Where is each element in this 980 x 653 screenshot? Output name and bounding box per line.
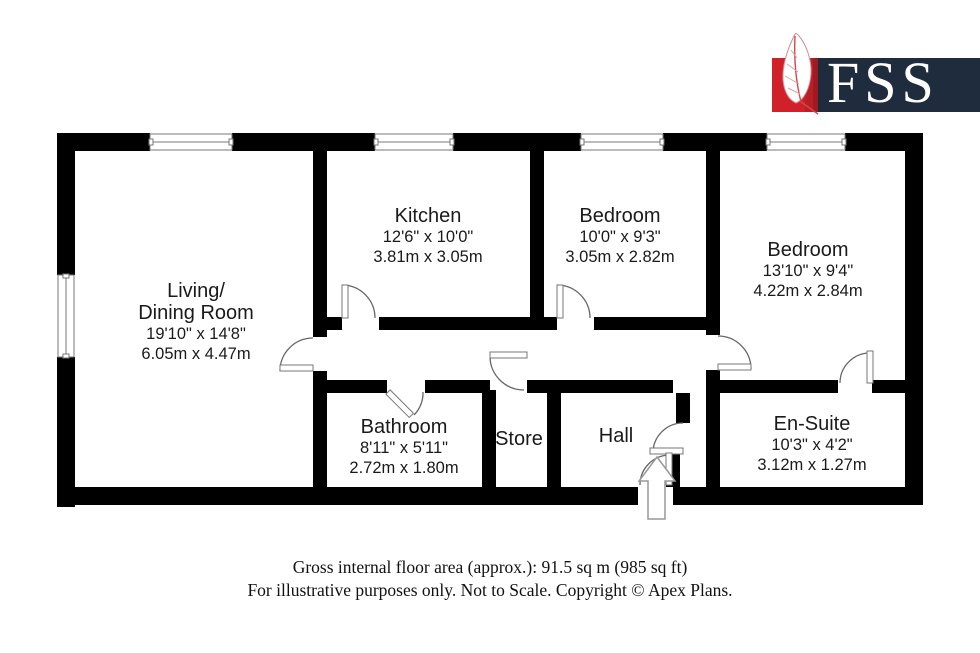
room-label-living: Living/ Dining Room 19'10" x 14'8" 6.05m… xyxy=(96,280,296,364)
door-store xyxy=(490,352,527,390)
room-label-store: Store xyxy=(469,428,569,450)
room-label-ensuite: En-Suite 10'3" x 4'2" 3.12m x 1.27m xyxy=(712,413,912,475)
room-size-metric: 2.72m x 1.80m xyxy=(304,458,504,478)
room-size-imperial: 12'6" x 10'0" xyxy=(328,227,528,247)
room-name: Store xyxy=(469,428,569,450)
window-living-left xyxy=(58,274,74,358)
room-size-imperial: 13'10" x 9'4" xyxy=(708,261,908,281)
door-bedroom1 xyxy=(557,285,590,318)
room-name: Living/ xyxy=(96,280,296,302)
door-kitchen xyxy=(342,285,375,318)
window-bedroom1 xyxy=(580,134,664,150)
room-size-metric: 3.05m x 2.82m xyxy=(520,247,720,267)
room-label-kitchen: Kitchen 12'6" x 10'0" 3.81m x 3.05m xyxy=(328,205,528,267)
room-label-hall: Hall xyxy=(566,425,666,447)
room-label-bedroom1: Bedroom 10'0" x 9'3" 3.05m x 2.82m xyxy=(520,205,720,267)
room-size-metric: 3.12m x 1.27m xyxy=(712,455,912,475)
door-bedroom2 xyxy=(718,336,751,370)
room-name: En-Suite xyxy=(712,413,912,435)
room-name: Dining Room xyxy=(96,302,296,324)
footer-disclaimer-text: For illustrative purposes only. Not to S… xyxy=(0,580,980,601)
window-kitchen xyxy=(374,134,454,150)
door-bathroom xyxy=(386,390,423,418)
footer-area-text: Gross internal floor area (approx.): 91.… xyxy=(0,557,980,578)
fss-logo: FSS xyxy=(772,30,980,115)
room-size-imperial: 10'3" x 4'2" xyxy=(712,435,912,455)
floorplan-page: Living/ Dining Room 19'10" x 14'8" 6.05m… xyxy=(0,0,980,653)
room-size-metric: 3.81m x 3.05m xyxy=(328,247,528,267)
window-bedroom2 xyxy=(766,134,846,150)
room-size-metric: 4.22m x 2.84m xyxy=(708,281,908,301)
door-ensuite xyxy=(840,351,873,383)
window-living-top xyxy=(149,134,233,150)
room-name: Bedroom xyxy=(708,239,908,261)
feather-icon xyxy=(774,30,834,115)
room-name: Bedroom xyxy=(520,205,720,227)
room-size-imperial: 19'10" x 14'8" xyxy=(96,324,296,344)
room-label-bedroom2: Bedroom 13'10" x 9'4" 4.22m x 2.84m xyxy=(708,239,908,301)
logo-wordmark: FSS xyxy=(818,58,980,112)
room-size-metric: 6.05m x 4.47m xyxy=(96,344,296,364)
room-name: Kitchen xyxy=(328,205,528,227)
room-size-imperial: 10'0" x 9'3" xyxy=(520,227,720,247)
room-name: Hall xyxy=(566,425,666,447)
